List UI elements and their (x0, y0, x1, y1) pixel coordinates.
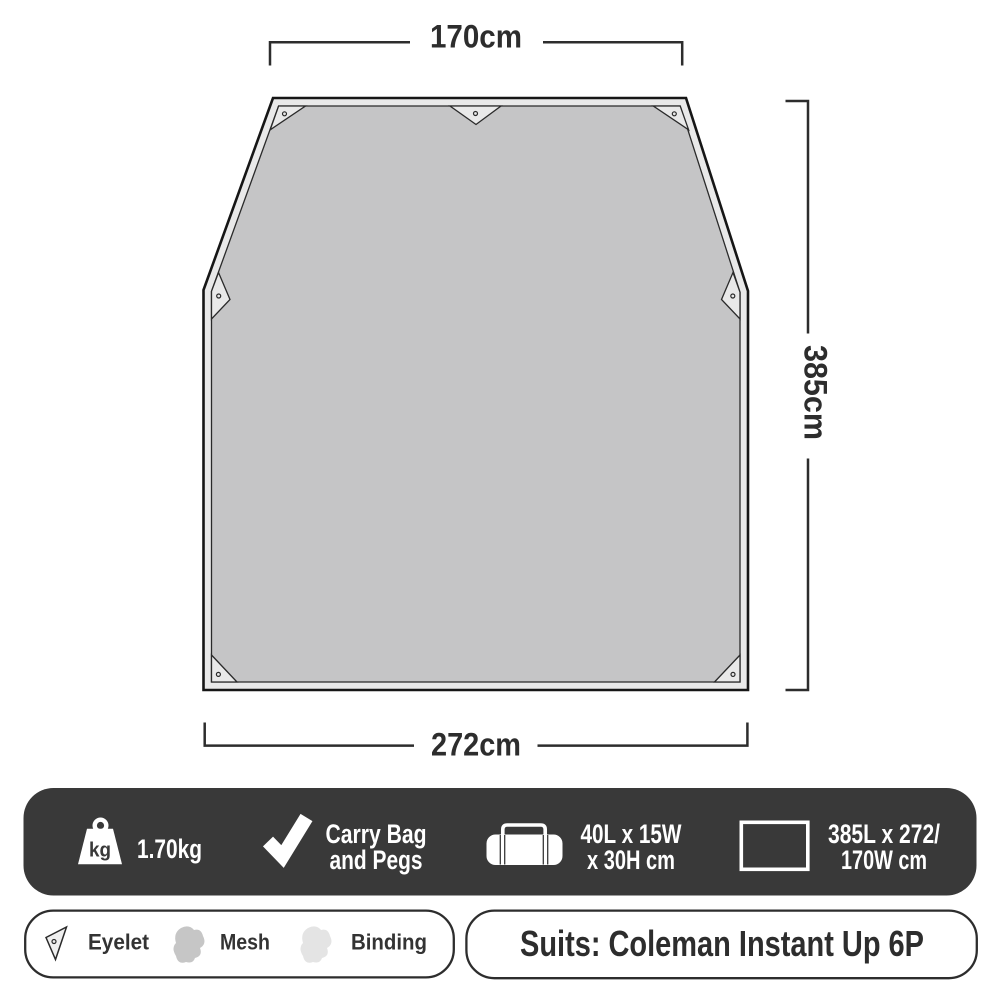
svg-text:170W cm: 170W cm (841, 845, 927, 875)
svg-text:x 30H cm: x 30H cm (587, 845, 675, 875)
svg-text:kg: kg (89, 840, 111, 862)
svg-text:Binding: Binding (351, 930, 427, 955)
svg-text:170cm: 170cm (430, 19, 522, 55)
svg-text:385cm: 385cm (798, 345, 834, 440)
svg-text:Mesh: Mesh (220, 930, 270, 955)
svg-text:Eyelet: Eyelet (88, 930, 150, 955)
svg-text:Suits: Coleman Instant Up 6P: Suits: Coleman Instant Up 6P (520, 923, 924, 964)
svg-text:and Pegs: and Pegs (330, 845, 423, 875)
svg-text:1.70kg: 1.70kg (137, 834, 202, 864)
svg-text:272cm: 272cm (431, 727, 521, 763)
